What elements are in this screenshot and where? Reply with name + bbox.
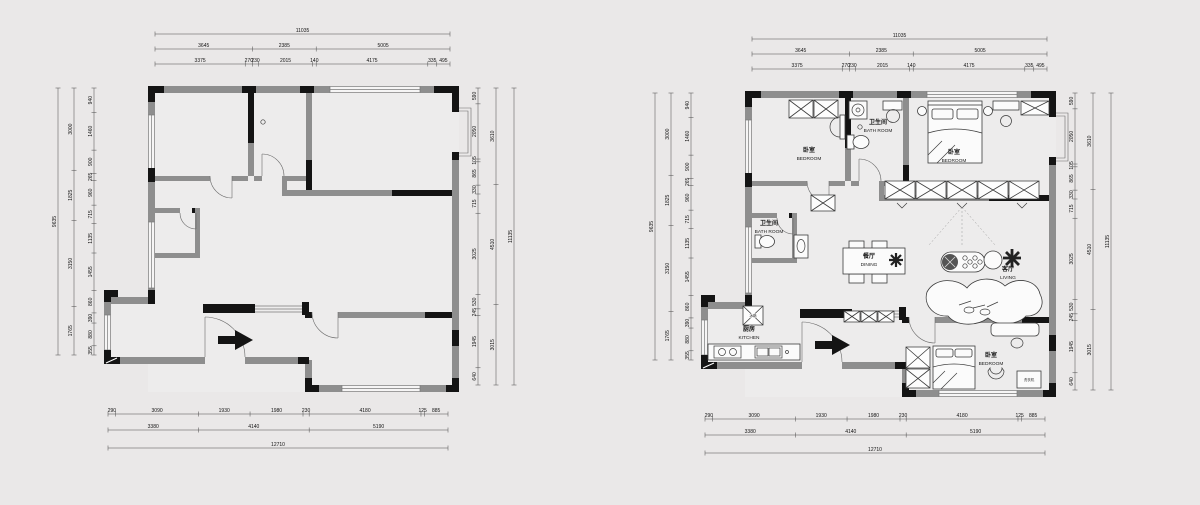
svg-text:245: 245 [1069,313,1075,322]
svg-text:900: 900 [685,162,691,171]
dim-right-total: 11135 [1105,93,1114,390]
svg-text:1135: 1135 [88,233,94,244]
svg-text:4510: 4510 [1087,244,1093,255]
dim-right-mid: 361045103015 [1087,93,1096,390]
svg-text:BATH ROOM: BATH ROOM [864,128,893,134]
svg-text:3025: 3025 [1069,253,1075,264]
svg-text:330: 330 [472,185,478,194]
svg-text:洗衣机: 洗衣机 [1024,377,1035,382]
dim-top-total: 11035 [155,28,450,37]
svg-text:355: 355 [685,351,691,360]
svg-text:865: 865 [1069,174,1075,183]
svg-text:715: 715 [685,215,691,224]
svg-text:125: 125 [418,408,427,414]
floor-plan-furnished: 11035 364523855005 337527023020151404175… [649,33,1114,456]
svg-text:1765: 1765 [68,325,74,336]
wardrobe [906,347,930,388]
svg-text:DINING: DINING [861,262,878,268]
svg-text:880: 880 [685,335,691,344]
svg-text:1460: 1460 [685,130,691,141]
svg-text:105: 105 [1069,161,1075,170]
svg-text:640: 640 [472,372,478,381]
cabinet [1021,101,1049,115]
svg-text:290: 290 [705,413,714,419]
svg-text:590: 590 [472,92,478,101]
svg-text:140: 140 [907,63,916,69]
dim-bottom-total: 12710 [108,442,448,451]
svg-text:冰箱: 冰箱 [750,313,758,318]
svg-text:1980: 1980 [271,408,282,414]
coffee-table [941,251,1002,272]
svg-text:1765: 1765 [665,330,671,341]
svg-text:715: 715 [88,210,94,219]
washing-machine: 洗衣机 [1017,371,1041,388]
svg-text:餐厅: 餐厅 [862,252,875,260]
dim-bottom-total: 12710 [705,447,1045,456]
svg-text:390: 390 [88,314,94,323]
svg-text:1825: 1825 [665,194,671,205]
dim-right-inner: 590205010586533071530255302451945640 [472,88,481,385]
svg-text:230: 230 [899,413,908,419]
svg-text:BEDROOM: BEDROOM [979,361,1004,367]
svg-text:335: 335 [428,58,437,64]
svg-text:9635: 9635 [649,221,655,232]
svg-text:885: 885 [432,408,441,414]
svg-text:LIVING: LIVING [1000,275,1016,281]
svg-text:3015: 3015 [1087,344,1093,355]
svg-text:140: 140 [310,58,319,64]
svg-text:5190: 5190 [373,424,384,430]
svg-text:3090: 3090 [749,413,760,419]
toilet [755,235,775,248]
svg-text:3150: 3150 [68,258,74,269]
svg-text:1945: 1945 [472,336,478,347]
dim-bottom-row1: 2903090193019802304180125885 [108,408,448,417]
svg-text:厨房: 厨房 [743,325,755,333]
svg-text:3375: 3375 [792,63,803,69]
svg-text:11135: 11135 [1105,235,1111,248]
svg-text:1825: 1825 [68,189,74,200]
svg-text:3090: 3090 [152,408,163,414]
svg-text:1980: 1980 [868,413,879,419]
nightstand [984,107,993,116]
svg-text:1945: 1945 [1069,341,1075,352]
svg-text:11035: 11035 [893,33,907,39]
svg-text:3380: 3380 [745,429,756,435]
dim-right-mid: 361045103015 [490,88,499,385]
floor-plan-empty: 11035 364523855005 337527023020151404175… [52,28,517,451]
svg-text:1135: 1135 [685,238,691,249]
svg-text:4510: 4510 [490,239,496,250]
svg-text:960: 960 [88,188,94,197]
svg-text:3000: 3000 [68,123,74,134]
svg-text:885: 885 [1029,413,1038,419]
svg-text:2015: 2015 [280,58,291,64]
hall-cabinet [811,195,835,211]
dim-top-row3: 337527023020151404175335495 [752,63,1047,72]
svg-text:3150: 3150 [665,263,671,274]
svg-text:2385: 2385 [876,48,887,54]
svg-text:3025: 3025 [472,248,478,259]
svg-text:4140: 4140 [845,429,856,435]
svg-text:9635: 9635 [52,216,58,227]
plant-icon [889,253,903,267]
svg-text:BEDROOM: BEDROOM [942,158,967,164]
svg-text:940: 940 [88,96,94,105]
dim-left-inner: 940146090026596071511351455860390880355 [685,93,694,360]
svg-text:290: 290 [108,408,117,414]
svg-text:330: 330 [1069,190,1075,199]
svg-text:715: 715 [472,199,478,208]
dim-bottom-row1: 2903090193019802304180125885 [705,413,1045,422]
bed [933,346,975,389]
svg-text:3375: 3375 [195,58,206,64]
svg-text:715: 715 [1069,204,1075,213]
dim-left-mid: 3000182531501765 [68,88,77,355]
svg-text:卧室: 卧室 [803,146,815,154]
svg-text:3610: 3610 [1087,135,1093,146]
washing-machine [849,101,867,119]
svg-text:BATH ROOM: BATH ROOM [755,229,784,235]
dim-right-inner: 590205010586533071530255302451945640 [1069,93,1078,390]
svg-text:5005: 5005 [975,48,986,54]
dim-left-mid: 3000182531501765 [665,93,674,360]
svg-text:3380: 3380 [148,424,159,430]
svg-text:5005: 5005 [378,43,389,49]
svg-text:530: 530 [1069,302,1075,311]
svg-text:230: 230 [302,408,311,414]
svg-text:1455: 1455 [88,266,94,277]
shoe-cabinet [844,311,894,322]
svg-text:卫生间: 卫生间 [760,219,778,227]
svg-text:2015: 2015 [877,63,888,69]
svg-text:11135: 11135 [508,230,514,243]
svg-text:卧室: 卧室 [948,148,960,156]
svg-text:495: 495 [1036,63,1045,69]
svg-text:1930: 1930 [816,413,827,419]
svg-text:4175: 4175 [366,58,377,64]
svg-text:1455: 1455 [685,271,691,282]
svg-text:530: 530 [472,297,478,306]
svg-text:390: 390 [685,319,691,328]
svg-text:4175: 4175 [963,63,974,69]
svg-text:105: 105 [472,156,478,165]
svg-text:265: 265 [88,172,94,181]
svg-text:卧室: 卧室 [985,351,997,359]
svg-text:卫生间: 卫生间 [869,118,887,126]
svg-text:1930: 1930 [219,408,230,414]
svg-text:4180: 4180 [360,408,371,414]
svg-text:4140: 4140 [248,424,259,430]
dim-left-inner: 940146090026596071511351455860390880355 [88,88,97,355]
nightstand [918,107,927,116]
svg-text:900: 900 [88,157,94,166]
svg-text:11035: 11035 [296,28,310,34]
svg-text:245: 245 [472,308,478,317]
svg-text:KITCHEN: KITCHEN [738,335,760,341]
dim-bottom-row2: 338041405190 [108,424,448,433]
dim-top-row2: 364523855005 [155,43,450,52]
washbasin [794,235,808,258]
svg-text:495: 495 [439,58,448,64]
svg-text:355: 355 [88,346,94,355]
svg-text:3645: 3645 [198,43,209,49]
dim-top-row2: 364523855005 [752,48,1047,57]
svg-text:860: 860 [88,297,94,306]
toilet [847,135,869,149]
dim-left-total: 9635 [649,93,658,360]
svg-text:12710: 12710 [271,442,285,448]
svg-text:2050: 2050 [472,126,478,137]
svg-text:865: 865 [472,169,478,178]
dim-top-total: 11035 [752,33,1047,42]
fridge: 冰箱 [743,306,763,325]
svg-text:335: 335 [1025,63,1034,69]
svg-text:3015: 3015 [490,339,496,350]
svg-text:3610: 3610 [490,130,496,141]
floor-plan-canvas: 11035 364523855005 337527023020151404175… [0,0,1200,500]
svg-text:125: 125 [1015,413,1024,419]
dim-top-row3: 337527023020151404175335495 [155,58,450,67]
svg-text:880: 880 [88,330,94,339]
dim-left-total: 9635 [52,88,61,355]
svg-text:230: 230 [251,58,260,64]
svg-text:BEDROOM: BEDROOM [797,156,822,162]
svg-text:230: 230 [848,63,857,69]
kitchen-counter [708,344,800,360]
svg-text:5190: 5190 [970,429,981,435]
svg-text:2385: 2385 [279,43,290,49]
svg-text:1460: 1460 [88,125,94,136]
svg-text:640: 640 [1069,377,1075,386]
dim-right-total: 11135 [508,88,517,385]
dim-bottom-row2: 338041405190 [705,429,1045,438]
svg-text:3000: 3000 [665,128,671,139]
svg-text:2050: 2050 [1069,131,1075,142]
svg-text:客厅: 客厅 [1001,265,1014,273]
svg-text:4180: 4180 [957,413,968,419]
svg-text:12710: 12710 [868,447,882,453]
svg-text:265: 265 [685,177,691,186]
svg-text:3645: 3645 [795,48,806,54]
svg-text:860: 860 [685,302,691,311]
svg-text:940: 940 [685,101,691,110]
svg-text:590: 590 [1069,97,1075,106]
svg-text:960: 960 [685,193,691,202]
